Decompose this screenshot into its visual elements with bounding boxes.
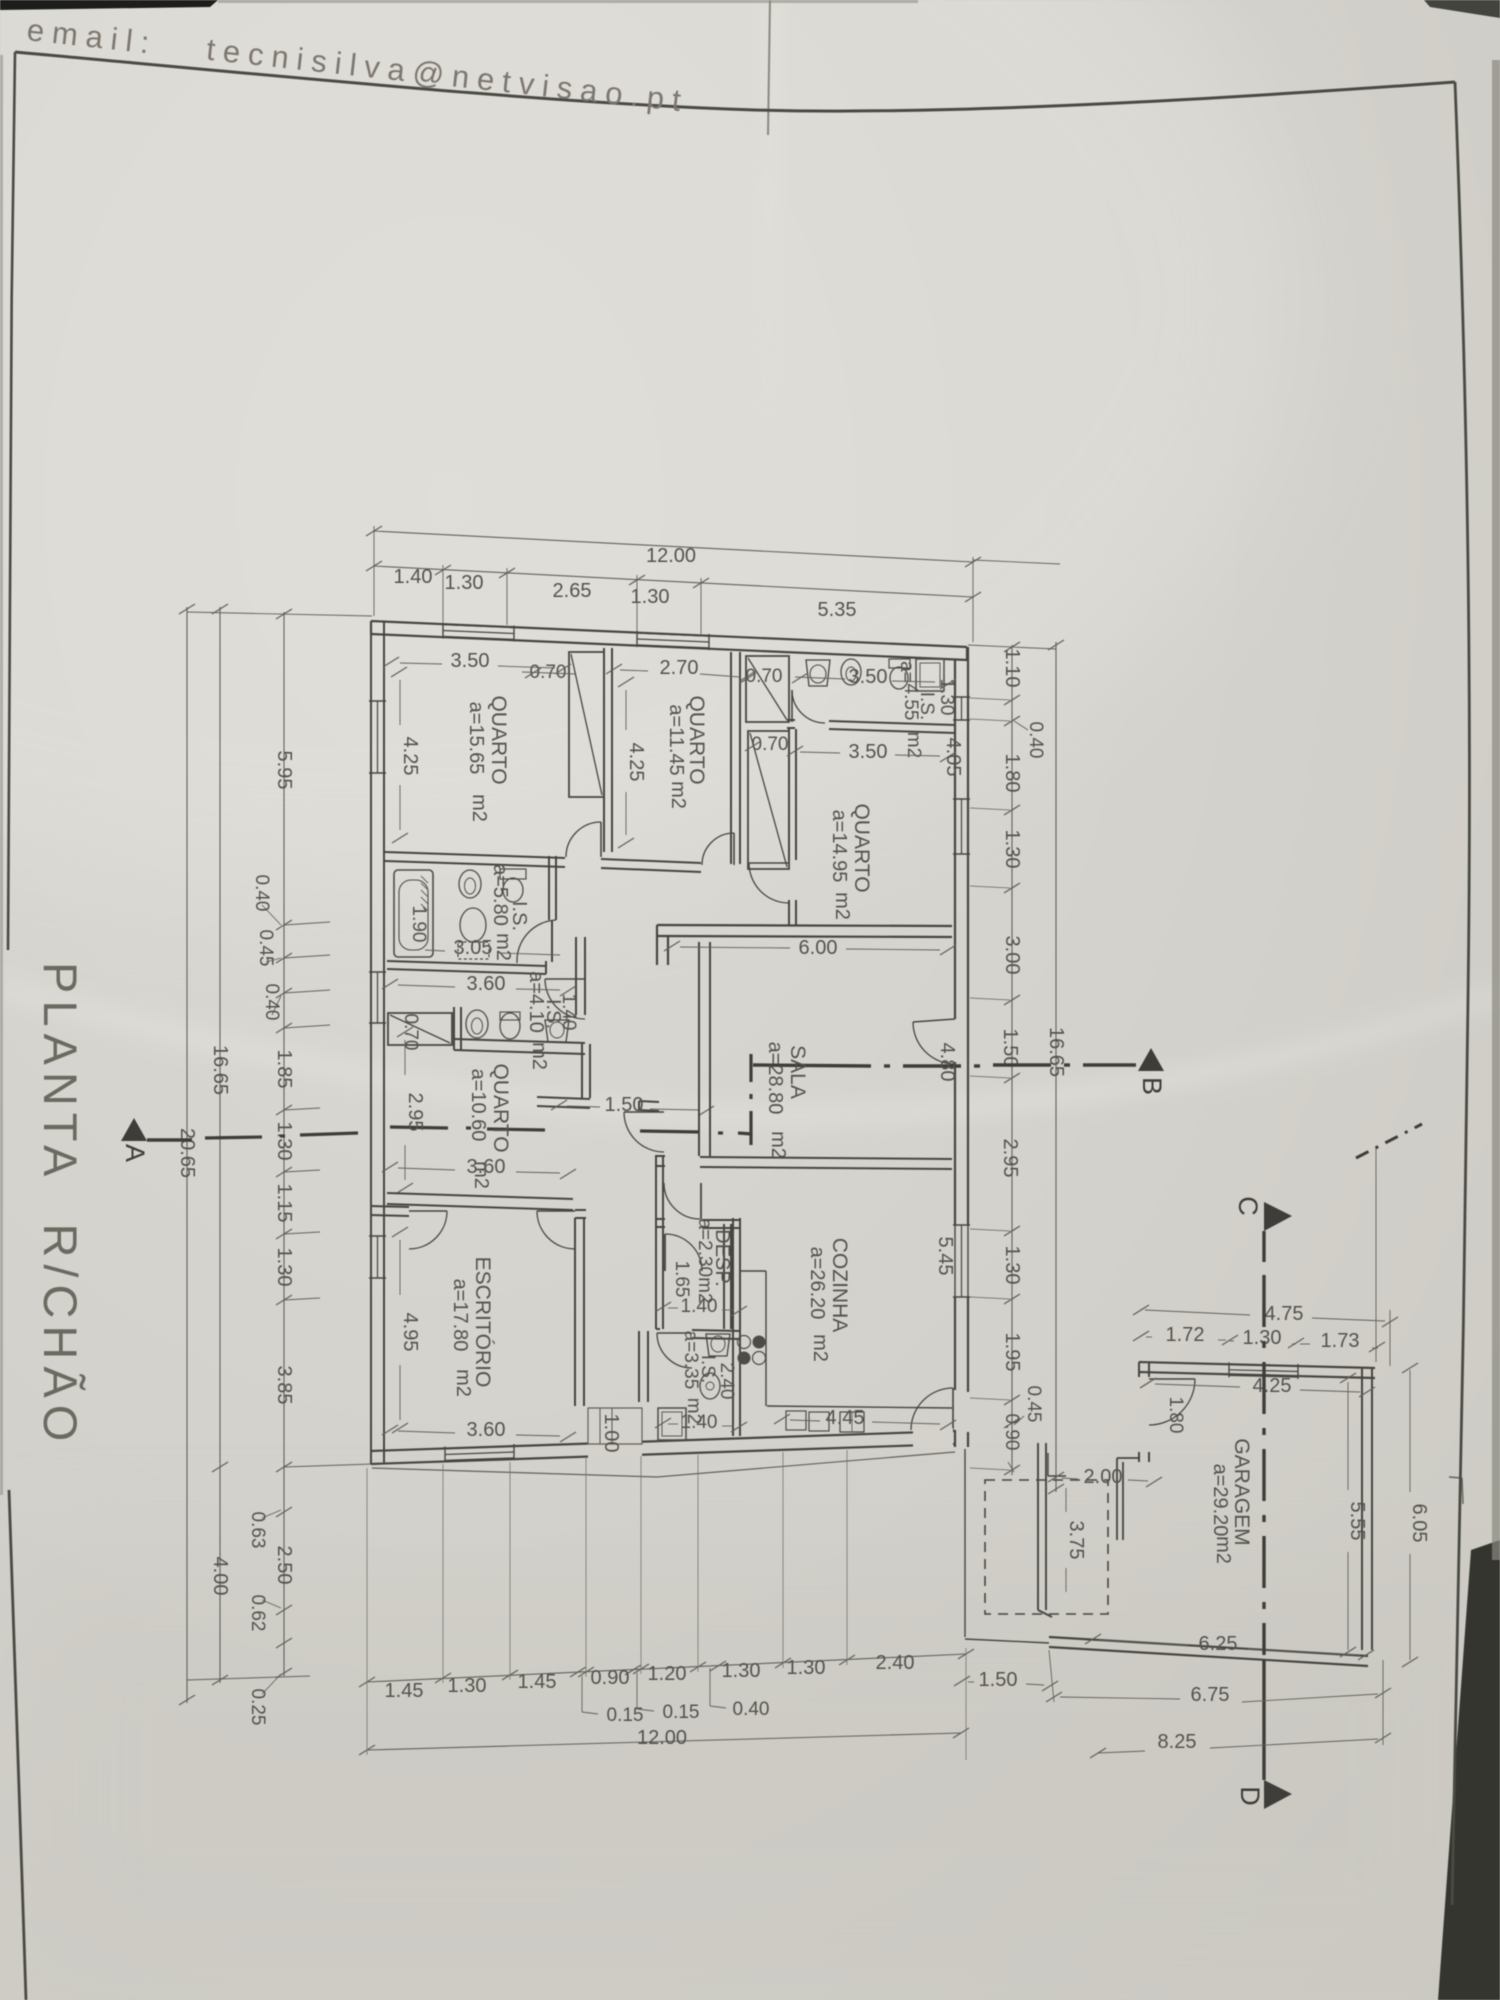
svg-text:m2: m2	[452, 1369, 474, 1397]
svg-text:QUARTO: QUARTO	[489, 1063, 512, 1152]
svg-text:3.60: 3.60	[467, 973, 506, 995]
svg-text:1.30: 1.30	[445, 572, 484, 594]
svg-text:3.50: 3.50	[849, 666, 888, 688]
svg-text:GARAGEM: GARAGEM	[1230, 1438, 1253, 1545]
svg-text:3.00: 3.00	[1001, 936, 1023, 975]
svg-text:2.50: 2.50	[273, 1546, 295, 1585]
svg-text:I.S.: I.S.	[916, 692, 937, 721]
svg-text:QUARTO: QUARTO	[850, 803, 873, 892]
svg-text:D: D	[1235, 1786, 1265, 1806]
svg-text:1.30: 1.30	[1001, 830, 1023, 869]
svg-text:0.90: 0.90	[1001, 1414, 1022, 1451]
svg-text:a=29.20: a=29.20	[1209, 1464, 1231, 1537]
svg-text:0.15: 0.15	[663, 1702, 700, 1723]
svg-text:0.40: 0.40	[733, 1699, 770, 1720]
svg-text:1.30: 1.30	[936, 679, 957, 716]
svg-text:4.25: 4.25	[399, 737, 421, 776]
svg-text:0.45: 0.45	[255, 930, 276, 967]
svg-text:6.25: 6.25	[1199, 1633, 1238, 1655]
svg-text:I.S.: I.S.	[697, 1355, 718, 1384]
svg-text:16.65: 16.65	[209, 1045, 231, 1095]
svg-text:A: A	[120, 1144, 150, 1162]
svg-text:1.50: 1.50	[999, 1029, 1021, 1068]
svg-text:m2: m2	[831, 892, 853, 920]
svg-text:1.90: 1.90	[408, 906, 429, 943]
svg-text:4.00: 4.00	[209, 1557, 231, 1596]
svg-text:1.30: 1.30	[273, 1248, 295, 1287]
svg-text:4.45: 4.45	[826, 1407, 865, 1429]
svg-text:0.40: 0.40	[1025, 722, 1046, 759]
svg-text:12.00: 12.00	[637, 1727, 687, 1749]
svg-text:a=: a=	[896, 661, 917, 683]
svg-text:1.30: 1.30	[1001, 1246, 1023, 1285]
svg-text:1.80: 1.80	[1001, 754, 1023, 793]
svg-text:I.S.: I.S.	[508, 901, 530, 931]
svg-text:0.25: 0.25	[247, 1689, 268, 1726]
svg-text:1.30: 1.30	[1243, 1327, 1282, 1349]
svg-text:4.25: 4.25	[625, 743, 647, 782]
svg-text:SALA: SALA	[786, 1045, 809, 1099]
svg-text:1.30: 1.30	[273, 1122, 295, 1161]
svg-text:4.95: 4.95	[399, 1313, 421, 1352]
svg-text:1.50: 1.50	[979, 1669, 1018, 1691]
svg-text:5.35: 5.35	[818, 599, 857, 621]
svg-text:3.85: 3.85	[273, 1366, 295, 1405]
svg-text:0.40: 0.40	[251, 875, 272, 912]
svg-text:4.25: 4.25	[1253, 1375, 1292, 1397]
svg-text:1.10: 1.10	[1001, 649, 1023, 688]
svg-text:m2: m2	[809, 1334, 831, 1362]
svg-text:1.00: 1.00	[600, 1414, 622, 1453]
svg-text:0.90: 0.90	[591, 1667, 630, 1689]
svg-text:1.30: 1.30	[448, 1675, 487, 1697]
svg-text:a=17.80: a=17.80	[449, 1279, 471, 1352]
svg-text:2.95: 2.95	[999, 1139, 1021, 1178]
svg-text:1.30: 1.30	[787, 1657, 826, 1679]
svg-text:1.80: 1.80	[1165, 1397, 1186, 1434]
svg-text:3.05: 3.05	[454, 937, 493, 959]
svg-text:1.30: 1.30	[631, 586, 670, 608]
svg-text:m2: m2	[903, 732, 924, 758]
svg-text:C: C	[1233, 1196, 1263, 1216]
svg-text:12.00: 12.00	[646, 545, 696, 567]
svg-text:1.40: 1.40	[394, 566, 433, 588]
svg-text:3.50: 3.50	[451, 650, 490, 672]
svg-text:PLANTA R/CHÃO: PLANTA R/CHÃO	[34, 962, 87, 1448]
svg-text:1.30: 1.30	[722, 1660, 761, 1682]
svg-text:1.73: 1.73	[1321, 1330, 1360, 1352]
svg-text:ESCRITÓRIO: ESCRITÓRIO	[471, 1257, 494, 1388]
svg-text:1.85: 1.85	[273, 1050, 295, 1089]
svg-text:1.40: 1.40	[558, 994, 579, 1031]
svg-text:3.60: 3.60	[467, 1419, 506, 1441]
svg-text:5.95: 5.95	[273, 751, 295, 790]
svg-text:8.25: 8.25	[1158, 1731, 1197, 1753]
svg-text:QUARTO: QUARTO	[685, 695, 708, 784]
svg-text:1.65: 1.65	[671, 1261, 692, 1298]
svg-text:3.60: 3.60	[467, 1156, 506, 1178]
svg-text:1.40: 1.40	[681, 1296, 718, 1317]
svg-text:4.75: 4.75	[1265, 1303, 1304, 1325]
svg-text:QUARTO: QUARTO	[487, 695, 510, 784]
svg-text:3.75: 3.75	[1065, 1521, 1087, 1560]
svg-text:m2: m2	[492, 933, 514, 961]
svg-text:0.62: 0.62	[247, 1595, 268, 1632]
svg-text:0.63: 0.63	[247, 1512, 268, 1549]
svg-text:1.72: 1.72	[1166, 1324, 1205, 1346]
svg-text:1.45: 1.45	[518, 1671, 557, 1693]
svg-text:a=26.20: a=26.20	[806, 1247, 828, 1320]
svg-text:1.45: 1.45	[385, 1680, 424, 1702]
svg-text:m2: m2	[468, 794, 490, 822]
svg-text:m2: m2	[667, 781, 689, 809]
svg-text:a=14.95: a=14.95	[828, 810, 850, 883]
svg-text:2.00: 2.00	[1084, 1466, 1123, 1488]
svg-text:1.20: 1.20	[648, 1663, 687, 1685]
svg-text:20.65: 20.65	[176, 1128, 198, 1178]
svg-text:0.70: 0.70	[752, 734, 789, 755]
svg-text:4.05: 4.05	[942, 738, 964, 777]
svg-text:a=10.60: a=10.60	[467, 1069, 489, 1142]
svg-text:5.45: 5.45	[934, 1237, 956, 1276]
svg-text:5.55: 5.55	[1346, 1502, 1368, 1541]
svg-text:a=2.30m2: a=2.30m2	[694, 1218, 715, 1303]
svg-text:1.15: 1.15	[273, 1184, 295, 1223]
svg-text:a=15.65: a=15.65	[465, 702, 487, 775]
svg-text:2.95: 2.95	[404, 1093, 426, 1132]
svg-text:0.15: 0.15	[607, 1705, 644, 1726]
svg-text:m2: m2	[528, 1042, 550, 1070]
svg-text:6.75: 6.75	[1191, 1684, 1230, 1706]
svg-text:m2: m2	[1212, 1536, 1234, 1564]
svg-text:0.40: 0.40	[261, 984, 282, 1021]
svg-text:a=28.80: a=28.80	[764, 1042, 786, 1115]
svg-text:16.65: 16.65	[1045, 1027, 1067, 1077]
svg-text:0.45: 0.45	[1023, 1386, 1044, 1423]
svg-text:3.50: 3.50	[849, 741, 888, 763]
svg-text:6.05: 6.05	[1408, 1504, 1430, 1543]
svg-text:B: B	[1137, 1077, 1167, 1095]
svg-text:m2: m2	[767, 1131, 789, 1159]
svg-text:COZINHA: COZINHA	[828, 1238, 851, 1333]
svg-text:4.80: 4.80	[936, 1043, 958, 1082]
svg-text:a=11.45: a=11.45	[665, 704, 687, 775]
svg-text:2.70: 2.70	[660, 657, 699, 679]
svg-text:1.95: 1.95	[1001, 1333, 1023, 1372]
svg-text:1.40: 1.40	[681, 1412, 718, 1433]
svg-text:2.40: 2.40	[876, 1652, 915, 1674]
svg-text:0.70: 0.70	[400, 1014, 421, 1051]
svg-text:6.00: 6.00	[799, 937, 838, 959]
svg-text:a=5.80: a=5.80	[489, 864, 511, 926]
svg-text:2.65: 2.65	[553, 580, 592, 602]
